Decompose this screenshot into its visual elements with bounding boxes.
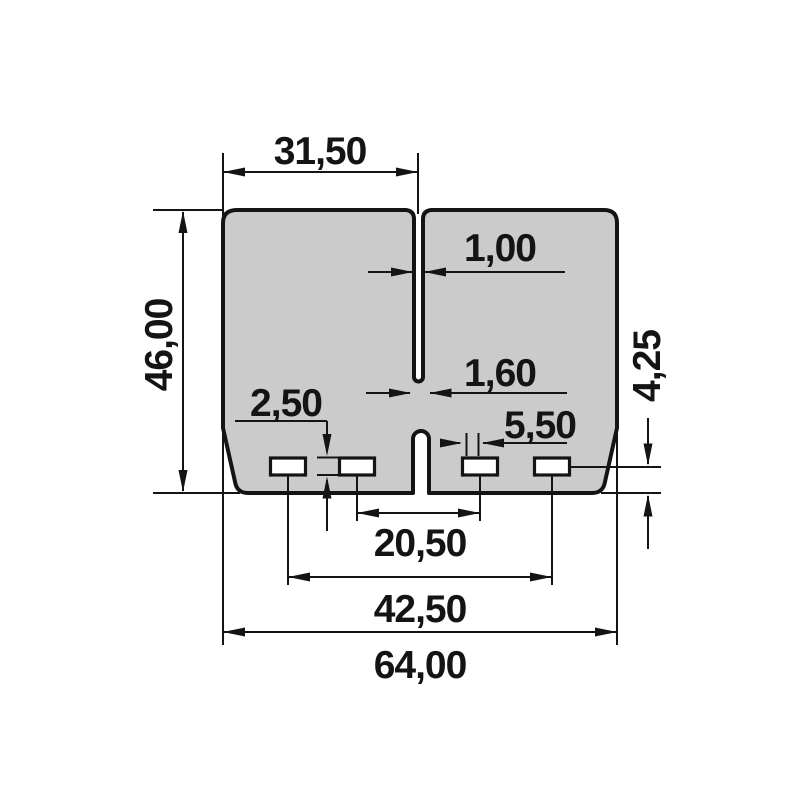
dim-label-overall-width: 64,00 — [374, 644, 467, 687]
dim-label-slot-width: 5,50 — [504, 404, 576, 447]
dim-label-top-half-width: 31,50 — [274, 130, 367, 173]
petal-body-shape — [223, 210, 617, 493]
dim-label-bottom-slit-width: 1,60 — [464, 352, 536, 395]
drawing-canvas: 31,50 46,00 1,00 1,60 2,50 5,50 4,25 20,… — [0, 0, 800, 800]
slot-1 — [271, 458, 306, 475]
dim-label-slot-height: 2,50 — [250, 382, 322, 425]
slot-3 — [463, 458, 498, 475]
part-outline — [223, 210, 617, 493]
dim-label-outer-slot-centers: 42,50 — [374, 588, 467, 631]
dim-label-overall-height: 46,00 — [138, 298, 181, 391]
slot-2 — [340, 458, 375, 475]
dim-label-slot-to-bottom: 4,25 — [626, 330, 669, 402]
slot-4 — [535, 458, 570, 475]
dim-label-inner-slot-centers: 20,50 — [374, 522, 467, 565]
dimension-drawing-svg: 31,50 46,00 1,00 1,60 2,50 5,50 4,25 20,… — [0, 0, 800, 800]
dim-label-top-slit-width: 1,00 — [464, 227, 536, 270]
